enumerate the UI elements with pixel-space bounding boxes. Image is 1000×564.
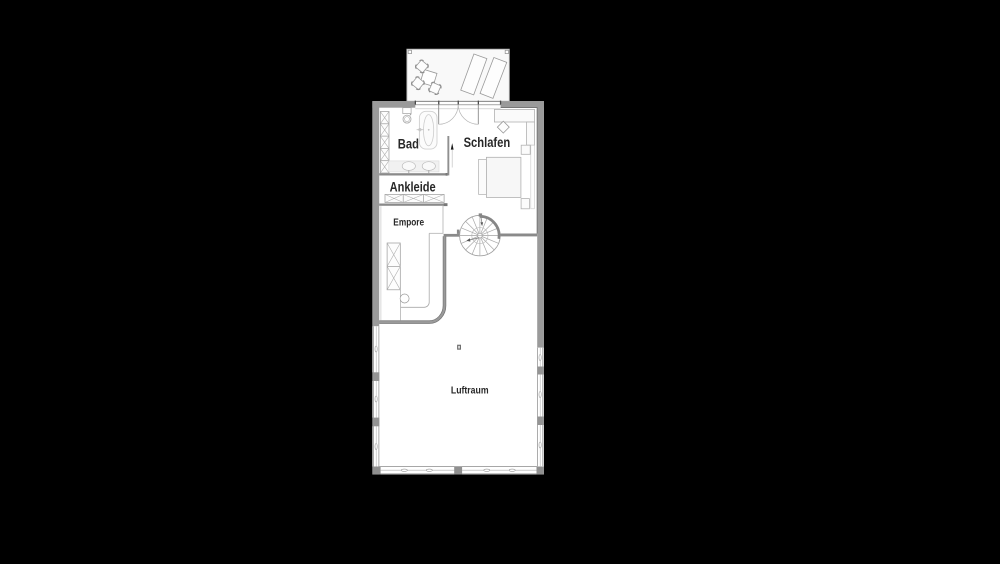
- svg-text:Bad: Bad: [398, 136, 419, 151]
- svg-text:Ankleide: Ankleide: [390, 179, 436, 195]
- svg-text:Schlafen: Schlafen: [464, 135, 511, 150]
- svg-text:Luftraum: Luftraum: [451, 385, 489, 396]
- svg-text:Empore: Empore: [393, 217, 424, 228]
